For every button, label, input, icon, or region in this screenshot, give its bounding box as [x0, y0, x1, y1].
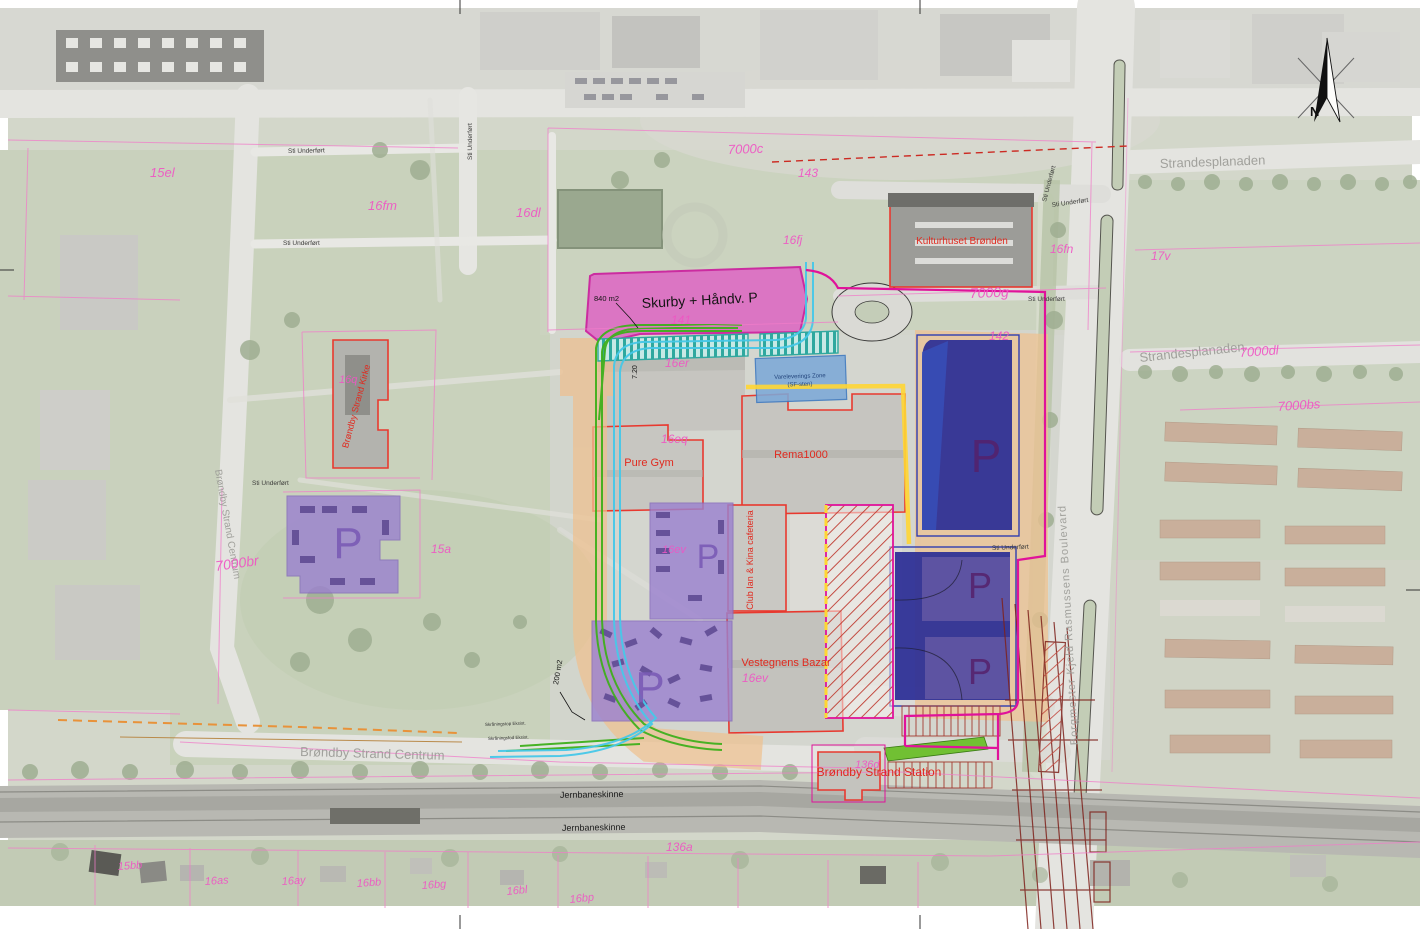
cad-7000g: 7000g [970, 284, 1010, 301]
p-navy-mid: P [968, 565, 992, 606]
cad-16as: 16as [204, 874, 229, 888]
bazar-label: Vestegnens Bazar [741, 657, 831, 669]
pure-gym-label: Pure Gym [624, 457, 674, 469]
jernbaneskinne-1: Jernbaneskinne [560, 789, 624, 800]
siteplan-map: Skurby + Håndv. P 840 m2 200 m2 7.20 Var… [0, 0, 1420, 929]
cad-16bp: 16bp [569, 891, 595, 905]
sti-underfort-3: Sti Underført [283, 240, 320, 247]
cad-16eq: 16eq [661, 432, 688, 446]
siteplan-page: Skurby + Håndv. P 840 m2 200 m2 7.20 Var… [0, 0, 1420, 929]
building-club [728, 505, 786, 611]
cad-16fm: 16fm [368, 198, 397, 213]
sti-underfort-2: Sti Underført [467, 123, 474, 160]
rema-label: Rema1000 [774, 449, 828, 461]
cad-16ev-b: 16ev [742, 671, 769, 685]
sti-underfort-1: Sti Underført [288, 147, 325, 155]
cad-15a: 15a [431, 542, 451, 556]
cad-16bg: 16bg [421, 878, 447, 892]
cad-136a: 136a [666, 840, 693, 854]
cad-16dl: 16dl [516, 205, 542, 220]
p-west: P [333, 519, 362, 568]
area-840-label: 840 m2 [594, 294, 619, 303]
sti-underfort-6: Sti Underført [1028, 296, 1065, 303]
delivery-zone-label-2: (SF-sten) [787, 382, 812, 389]
p-south: P [635, 663, 664, 712]
cad-16q: 16q [339, 374, 358, 386]
cad-142: 142 [989, 329, 1009, 343]
cad-7000bs: 7000bs [1277, 396, 1321, 414]
cad-16fj: 16fj [783, 233, 803, 247]
cad-16bl: 16bl [506, 884, 528, 898]
cad-15bb: 15bb [117, 859, 142, 873]
cad-15el: 15el [150, 165, 176, 180]
cad-16ay: 16ay [281, 874, 307, 888]
cad-17v: 17v [1151, 249, 1171, 263]
red-hatched-zone [826, 505, 893, 718]
club-label: Club Ian & Kina cafeteria [745, 510, 755, 610]
p-navy-south: P [968, 651, 992, 692]
north-letter: N [1310, 104, 1319, 119]
cad-16fn: 16fn [1050, 242, 1074, 256]
p-centre: P [697, 538, 720, 576]
aerial-basemap [0, 8, 1420, 929]
sti-underfort-8: Sti Underført [992, 544, 1029, 552]
sti-underfort-7: Sti Underført [252, 480, 289, 487]
jernbaneskinne-2: Jernbaneskinne [562, 822, 626, 833]
kulturhuset-label: Kulturhuset Brønden [916, 236, 1008, 247]
cad-141: 141 [671, 313, 691, 327]
p-navy-north: P [971, 430, 1002, 482]
cad-7000dl: 7000dl [1239, 342, 1280, 360]
cad-136d: 136d [855, 759, 880, 771]
cad-7000c: 7000c [728, 141, 764, 157]
cad-143: 143 [798, 166, 818, 180]
cad-16er: 16er [665, 356, 690, 370]
cad-16ev-a: 16ev [662, 544, 687, 556]
depth-label: 7.20 [632, 365, 639, 379]
cad-16bb: 16bb [356, 876, 381, 890]
